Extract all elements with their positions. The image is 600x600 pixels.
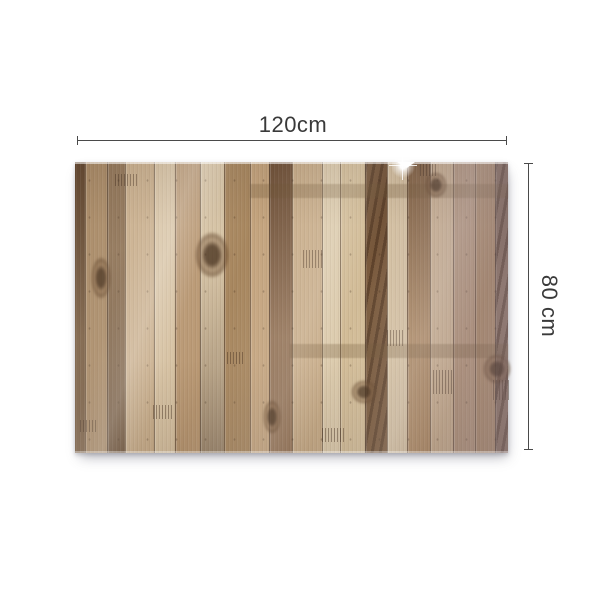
light-glare-icon [389, 152, 417, 180]
width-dimension-line [77, 140, 507, 141]
dimension-tick-bottom [524, 449, 533, 450]
dimension-tick-top [524, 163, 533, 164]
dimension-tick-right [506, 136, 507, 145]
width-dimension-label: 120cm [259, 112, 328, 138]
dimension-tick-left [77, 136, 78, 145]
glossy-reflection-overlay [75, 162, 508, 453]
product-dimension-image: 120cm 80 cm [0, 0, 600, 600]
bottom-edge-highlight [75, 451, 508, 453]
top-edge-highlight [75, 162, 508, 164]
height-dimension-label: 80 cm [536, 275, 562, 337]
wood-panel-image [75, 162, 508, 453]
height-dimension-line [528, 163, 529, 450]
